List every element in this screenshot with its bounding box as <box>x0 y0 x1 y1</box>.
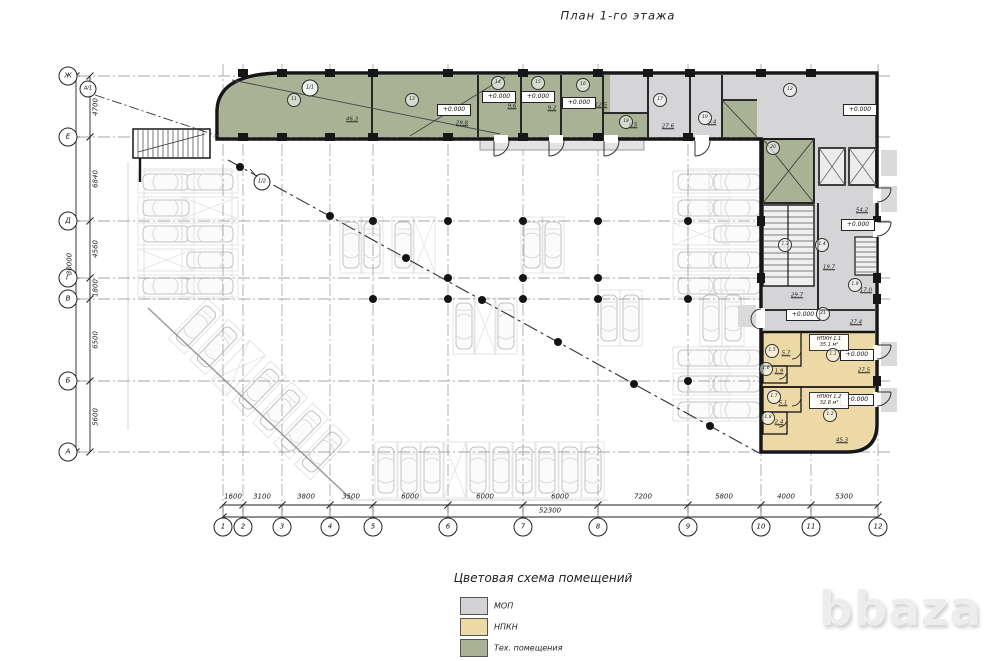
axis-bubble-row-v: В <box>59 290 78 309</box>
axis-bubble-col-12: 12 <box>869 518 888 537</box>
legend-title: Цветовая схема помещений <box>454 572 633 584</box>
room-area: 46.3 <box>346 117 358 123</box>
dim-left-6: 5600 <box>93 408 100 426</box>
stairwell-secondary <box>855 237 877 275</box>
watermark: bbaza <box>819 582 982 637</box>
axis-bubble-row-b: Б <box>59 372 78 391</box>
axis-bubble-col-11: 11 <box>802 518 821 537</box>
room-area: 9.6 <box>508 104 517 110</box>
legend-swatch-npkn <box>460 618 488 636</box>
dim-bottom-10: 4000 <box>777 494 795 501</box>
room-bubble: 1.8 <box>761 411 775 425</box>
room-bubble: 20 <box>766 141 780 155</box>
room-area: 45.3 <box>836 438 848 444</box>
room-area: 19.7 <box>823 265 835 271</box>
axis-bubble-col-2: 2 <box>234 518 253 537</box>
room-area: 17.0 <box>860 288 872 294</box>
axis-bubble-1-1: 1/1 <box>302 80 319 97</box>
room-bubble: 1.5 <box>765 344 779 358</box>
axis-bubble-col-1: 1 <box>214 518 233 537</box>
axis-bubble-col-3: 3 <box>273 518 292 537</box>
room-bubble: 13 <box>405 93 419 107</box>
dim-bottom-11: 5300 <box>835 494 853 501</box>
elevation-box: +0.000 <box>786 309 820 321</box>
axis-bubble-col-8: 8 <box>589 518 608 537</box>
axis-bubble-col-10: 10 <box>752 518 771 537</box>
dim-left-4: 1800 <box>93 279 100 297</box>
room-area: 5.1 <box>779 401 788 407</box>
dim-bottom-9: 5800 <box>715 494 733 501</box>
axis-bubble-a1: А/1 <box>80 81 97 98</box>
room-area: 29.8 <box>456 121 468 127</box>
axis-bubble-row-zh: Ж <box>59 67 78 86</box>
parking-layer <box>128 162 765 500</box>
dim-bottom-5: 6000 <box>401 494 419 501</box>
legend-swatch-tech <box>460 639 488 657</box>
dim-left-total: 30000 <box>67 253 74 275</box>
legend-label-tech: Тех. помещения <box>494 644 562 653</box>
room-area: 27.6 <box>662 124 674 130</box>
axis-bubble-row-d: Д <box>59 212 78 231</box>
dim-bottom-8: 7200 <box>634 494 652 501</box>
room-bubble: 1.2 <box>823 408 837 422</box>
elevation-box: +0.000 <box>840 349 874 361</box>
room-bubble: 18 <box>619 115 633 129</box>
elevation-box: +0.000 <box>482 91 516 103</box>
room-bubble: 1.3 <box>778 238 792 252</box>
dim-left-2: 6840 <box>93 170 100 188</box>
elevation-box: +0.000 <box>841 219 875 231</box>
room-bubble: 19 <box>698 111 712 125</box>
axis-bubble-col-5: 5 <box>364 518 383 537</box>
room-bubble: 1.7 <box>767 390 781 404</box>
unit-label-npkn-1-2: НПКН 1.2 32.8 м² <box>809 392 849 409</box>
room-bubble: 15 <box>531 76 545 90</box>
room-area: 9.2 <box>548 106 557 112</box>
dim-bottom-4: 3500 <box>342 494 360 501</box>
legend-swatch-mop <box>460 597 488 615</box>
room-area: 27.4 <box>850 320 862 326</box>
room-bubble: 21 <box>816 307 830 321</box>
floor-plan-page: План 1-го этажа Ж Е Д Г В Б А 1 2 3 4 5 … <box>0 0 1000 661</box>
dim-bottom-total: 52300 <box>539 508 561 515</box>
room-area: 29.7 <box>791 293 803 299</box>
legend-label-npkn: НПКН <box>494 623 518 632</box>
room-bubble: 16 <box>576 78 590 92</box>
dim-left-5: 6500 <box>93 331 100 349</box>
room-bubble: 1.6 <box>759 362 773 376</box>
axis-bubble-row-a: А <box>59 443 78 462</box>
room-bubble: 12 <box>783 83 797 97</box>
room-area: 1.9 <box>775 369 784 375</box>
axis-bubble-col-7: 7 <box>514 518 533 537</box>
elevation-box: +0.000 <box>562 97 596 109</box>
elevation-box: +0.000 <box>437 104 471 116</box>
room-bubble: 1.4 <box>815 238 829 252</box>
room-bubble: 17 <box>653 93 667 107</box>
elevation-box: +0.000 <box>843 104 877 116</box>
page-title: План 1-го этажа <box>561 10 676 22</box>
room-area: 5.7 <box>782 351 791 357</box>
room-area: 2.4 <box>775 420 784 426</box>
site-boundary-line <box>148 308 352 500</box>
room-area: 54.2 <box>856 208 868 214</box>
room-bubble: 1.1 <box>826 348 840 362</box>
axis-bubble-1-2: 1/2 <box>254 174 271 191</box>
elevation-box: +0.000 <box>521 91 555 103</box>
room-area: 27.5 <box>858 368 870 374</box>
dim-bottom-2: 3100 <box>253 494 271 501</box>
axis-bubble-col-9: 9 <box>679 518 698 537</box>
dim-bottom-7: 6000 <box>551 494 569 501</box>
dim-left-1: 4700 <box>93 98 100 116</box>
dim-bottom-6: 6000 <box>476 494 494 501</box>
legend-label-mop: МОП <box>494 602 513 611</box>
dim-bottom-1: 1600 <box>224 494 242 501</box>
axis-bubble-col-6: 6 <box>439 518 458 537</box>
unit-size: 35.1 м² <box>810 342 848 348</box>
unit-size: 32.8 м² <box>810 400 848 406</box>
room-bubble: 14 <box>491 76 505 90</box>
axis-bubble-col-4: 4 <box>321 518 340 537</box>
dim-left-3: 4560 <box>93 240 100 258</box>
room-area: 12.5 <box>595 103 607 109</box>
axis-bubble-row-e: Е <box>59 128 78 147</box>
room-bubble: 1.9 <box>848 278 862 292</box>
dim-bottom-3: 3800 <box>297 494 315 501</box>
room-bubble: 11 <box>287 93 301 107</box>
